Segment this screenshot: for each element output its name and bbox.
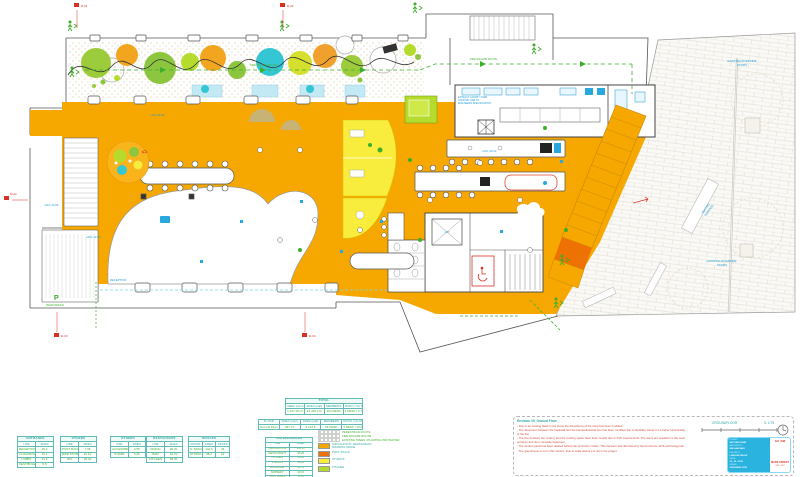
terrace-label: STAIRS: [717, 263, 727, 267]
range-icon: [478, 120, 494, 134]
table-cell: WC: [61, 457, 79, 462]
floor-area-table: FLOORAREA (sqm)AREA (sqft)MEMBERSRATIO /…: [258, 419, 363, 430]
title-block: CLIENT: SECOND HOME ARCHITECT: SELGASCAN…: [727, 437, 791, 473]
offices-area-table: OFFICESROOMAREADESKSS. SPACE142.546STUDI…: [188, 436, 230, 458]
table-cell: 847.70: [279, 425, 300, 430]
section-marker-label: D-04: [309, 334, 316, 338]
others-area-table: OTHERSUSEAREAPOST ROOM7.95BIKE STORAGE21…: [60, 436, 97, 463]
level-label: +FFL 30.90: [44, 203, 59, 207]
legend-fill-row: CIRCULATION / RESTAURANTROAMING SPACE: [318, 443, 438, 449]
fill-label: CIRCULATION / RESTAURANTROAMING SPACE: [332, 443, 372, 449]
fill-label: KITCHEN: [332, 466, 344, 469]
pram-parking-label: PRAM PARKING: [46, 304, 64, 307]
lift: LIFT: [432, 219, 462, 245]
note-item: - The greenhouse is not in this version.…: [517, 450, 685, 453]
table-cell: 1 DESK / 4.72 m²: [343, 409, 362, 414]
table-cell: 12: [216, 452, 230, 457]
terrace-label: STAIRS: [737, 63, 747, 67]
lounge-table: [350, 253, 414, 269]
fill-swatch: [318, 451, 330, 457]
table-cell: 38.2: [202, 452, 216, 457]
section-marker-label: D-01: [81, 4, 88, 8]
fire-route-label: FIRE ESCAPE ROUTE: [250, 63, 277, 67]
accessible-wc: [472, 256, 494, 286]
street-name: MARE STREET: [770, 461, 790, 464]
restaurant-area-table: RESTAURANTUSEAREADINING96.20BAR42.70KITC…: [146, 436, 183, 463]
floor-name-label: GROUNDFLOOR: [712, 421, 738, 425]
table-cell: 5.8: [36, 463, 54, 468]
fire-route-label: FIRE ESCAPE ROUTE: [470, 57, 497, 61]
fill-label: STUDIOS: [332, 458, 344, 461]
table-cell: Ground Floor: [259, 425, 280, 430]
pram-parking-symbol: P: [54, 295, 59, 302]
table-cell: STORE: [111, 452, 129, 457]
north-clock-icon: [778, 425, 788, 435]
note-item: - The dimension between the backwall and…: [517, 429, 685, 436]
level-label: +FFL 32.90: [150, 113, 165, 117]
use-breakdown-table: USE BREAKDOWNUSEAREACIRCULATION302.40RES…: [265, 437, 313, 477]
garden-band: [68, 35, 424, 98]
lift-label: LIFT: [444, 230, 450, 234]
notes-title: Revision 09_Ground Floor: [517, 419, 685, 423]
fill-swatch: [318, 458, 330, 464]
table-cell: 25.40: [79, 457, 97, 462]
table-cell: STUDIO 1: [189, 452, 203, 457]
reception-label: RECEPTION: [110, 278, 126, 282]
level-label: +FFL 33.10: [482, 149, 497, 153]
table-cell: 1,247.25 m²: [286, 409, 305, 414]
fill-swatch: [318, 466, 330, 472]
total-area-table: TOTALAREA (sqm)AREA (sqft)MEMBERSRATIO /…: [285, 398, 363, 415]
kitchen-note-line: ENGINEERS SPECIFICATION: [458, 102, 491, 105]
section-marker-label: D-03: [61, 334, 68, 338]
section-marker-label: D-02: [287, 4, 294, 8]
plan-legend: PEDESTRIAN ROUTEFIRE ESCAPE ROUTEEXISTIN…: [318, 430, 438, 472]
stage-value: GROUNDFLOOR: [730, 467, 769, 470]
north-wall-columns: [90, 35, 408, 41]
floor-plan-drawing: EXTRACT CANOPY OVER COOKING LINE TO ENGI…: [0, 0, 800, 477]
table-cell: 6.20: [128, 452, 146, 457]
title-block-info: CLIENT: SECOND HOME ARCHITECT: SELGASCAN…: [728, 438, 770, 472]
scale-bar: GROUNDFLOOR S: 1/75: [702, 421, 788, 435]
floor-plan-sheet: EXTRACT CANOPY OVER COOKING LINE TO ENGI…: [0, 0, 800, 477]
table-cell: VESTIBULE: [18, 463, 36, 468]
scale-label: S: 1/75: [764, 421, 774, 425]
upper-wing-stair: [470, 16, 535, 40]
revision-notes: Revision 09_Ground Floor - Due to an exi…: [517, 419, 685, 455]
fill-label: POST SNACK: [332, 451, 350, 454]
section-marker-label: M-01: [10, 192, 17, 196]
left-stair: [64, 138, 98, 226]
table-cell: 264 DESK: [324, 409, 343, 414]
entrance-area-table: ENTRANCEUSEAREARECEPTION15.2CLOAKROOM10.…: [17, 436, 54, 468]
level-label: +FFL 32.80: [86, 235, 101, 239]
note-item: - The line between the nursery and the c…: [517, 437, 685, 444]
play-circle-cluster: [107, 141, 149, 183]
title-block-right: A04_J098 MARE STREET 125 - 127: [770, 438, 790, 472]
fill-swatch: [318, 443, 330, 449]
street-number: 125 - 127: [770, 465, 790, 467]
others-area-table-2: OTHERSUSEAREAACCESSIBLE WC4.55STORE6.20: [110, 436, 146, 458]
table-cell: 13,425.3 ft²: [305, 409, 324, 414]
legend-fill-row: KITCHEN: [318, 466, 438, 472]
table-cell: KITCHEN: [147, 457, 165, 462]
job-number: A04_J098: [770, 441, 790, 443]
legend-fill-row: STUDIOS: [318, 458, 438, 464]
legend-fill-row: POST SNACK: [318, 451, 438, 457]
table-cell: 58.30: [165, 457, 183, 462]
bottom-left-stair: [42, 230, 98, 302]
